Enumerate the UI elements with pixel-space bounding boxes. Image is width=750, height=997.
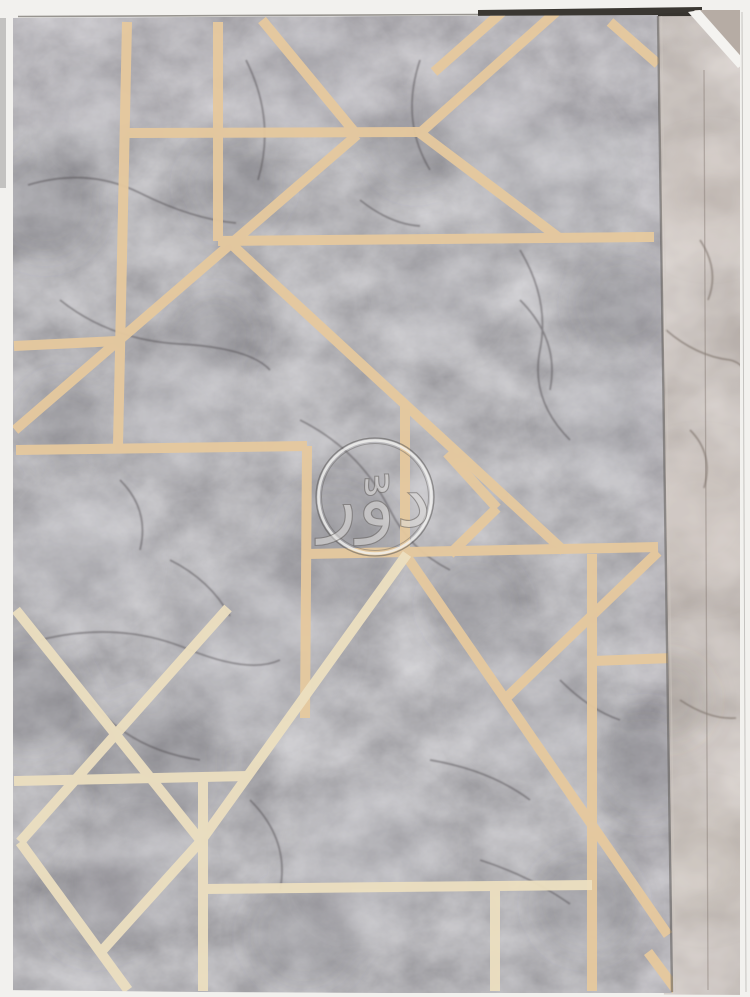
wallpaper-photo: دوّر — [0, 0, 750, 997]
gold-line — [14, 341, 118, 346]
left-edge-shadow — [0, 18, 6, 188]
gold-line — [218, 237, 654, 241]
watermark: دوّر — [315, 438, 434, 556]
photo-canvas: دوّر — [0, 0, 750, 997]
gold-line — [305, 446, 307, 718]
gold-line — [203, 885, 592, 889]
gold-line — [14, 776, 248, 781]
watermark-text: دوّر — [315, 452, 432, 546]
gold-line — [129, 132, 420, 133]
gold-line — [592, 658, 672, 661]
gold-line — [16, 446, 307, 450]
